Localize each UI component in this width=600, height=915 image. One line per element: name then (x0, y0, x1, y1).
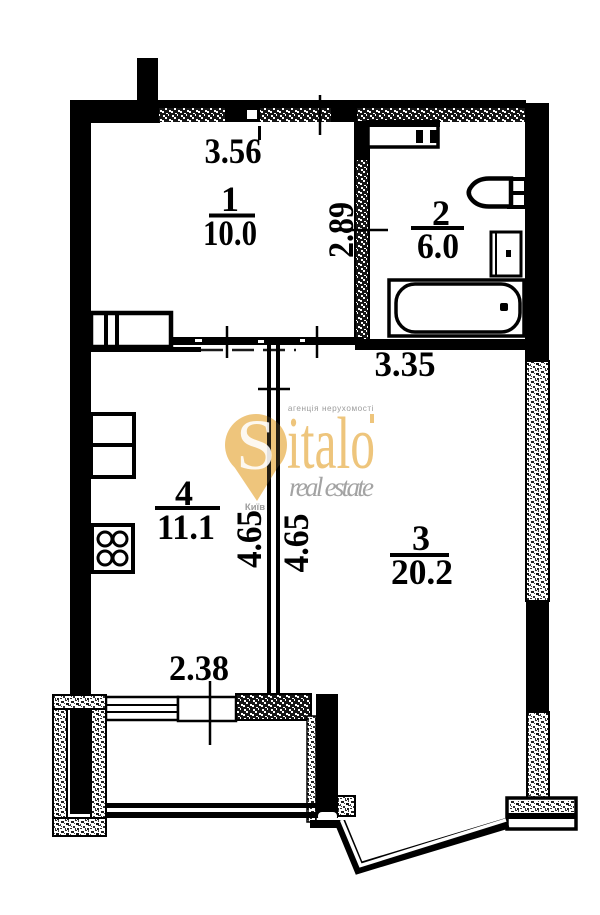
svg-text:20.2: 20.2 (391, 552, 453, 592)
svg-text:4.65: 4.65 (229, 510, 269, 568)
svg-text:3.35: 3.35 (375, 344, 436, 384)
svg-text:6.0: 6.0 (417, 226, 459, 266)
svg-text:real estate: real estate (289, 472, 374, 502)
svg-text:3.56: 3.56 (205, 131, 262, 171)
svg-text:Київ: Київ (245, 502, 265, 513)
svg-text:S: S (236, 405, 276, 485)
svg-text:11.1: 11.1 (157, 507, 215, 547)
svg-text:2.38: 2.38 (169, 648, 229, 688)
svg-text:2.89: 2.89 (321, 202, 361, 258)
svg-text:10.0: 10.0 (203, 213, 257, 253)
svg-text:4.65: 4.65 (276, 514, 316, 573)
